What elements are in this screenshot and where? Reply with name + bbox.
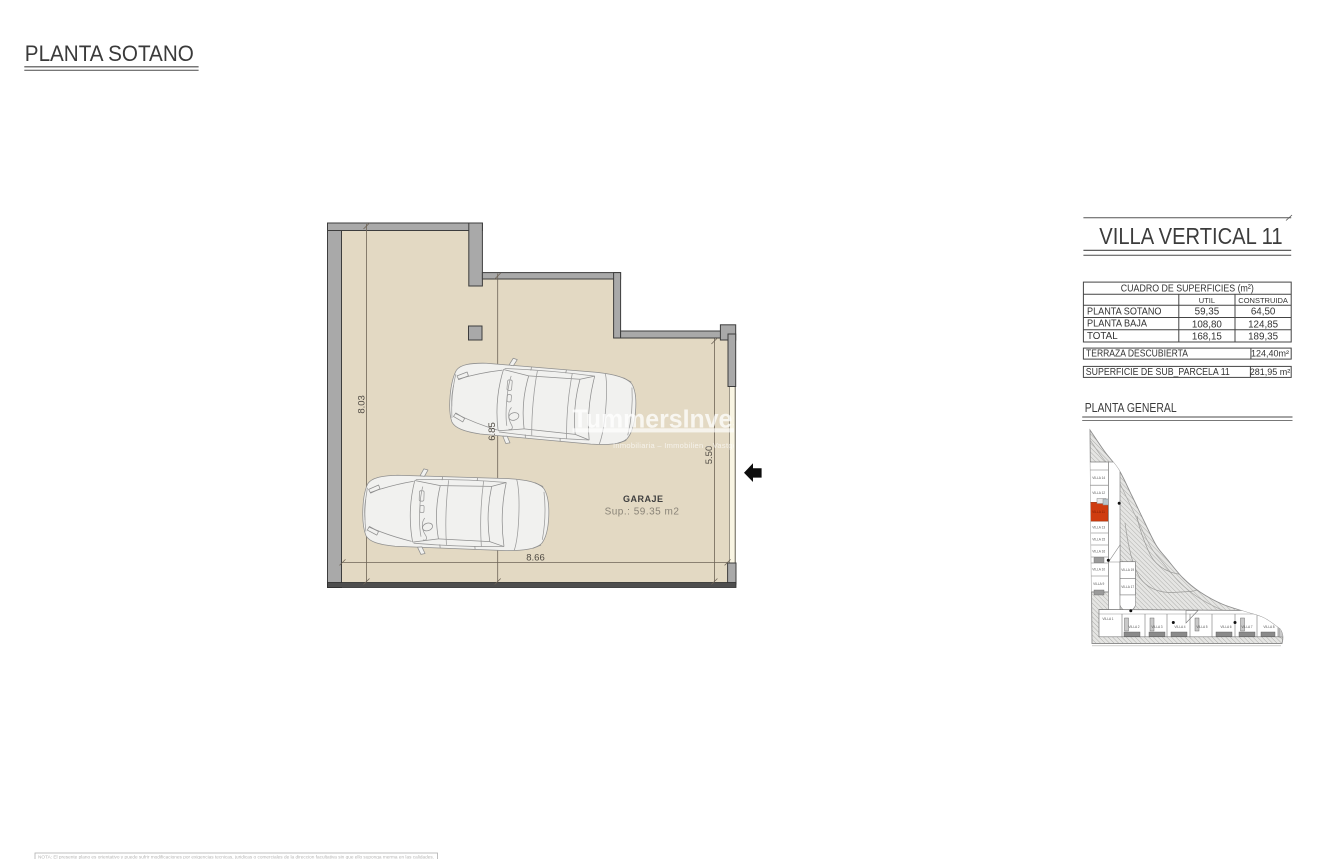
svg-text:PLANTA SOTANO: PLANTA SOTANO [1087,306,1162,317]
svg-text:VILLA 19: VILLA 19 [1121,568,1134,572]
svg-text:PLANTA GENERAL: PLANTA GENERAL [1085,401,1177,415]
svg-text:8.66: 8.66 [526,553,545,564]
svg-text:VILLA 10: VILLA 10 [1092,568,1105,572]
svg-text:59,35: 59,35 [1195,306,1220,317]
svg-text:VILLA 17: VILLA 17 [1121,585,1134,589]
svg-text:VILLA 9: VILLA 9 [1093,582,1104,586]
svg-text:TOTAL: TOTAL [1087,331,1118,342]
svg-text:VILLA 13: VILLA 13 [1092,526,1105,530]
svg-text:GARAJE: GARAJE [623,494,664,504]
svg-text:Sup.: 59.35 m2: Sup.: 59.35 m2 [605,507,680,518]
svg-text:VILLA 14: VILLA 14 [1092,476,1105,480]
svg-text:168,15: 168,15 [1192,332,1223,343]
svg-text:VILLA 1: VILLA 1 [1102,617,1113,621]
svg-text:UTIL: UTIL [1199,296,1215,305]
svg-text:189,35: 189,35 [1248,332,1279,343]
svg-text:6.85: 6.85 [487,422,498,441]
svg-text:PLANTA SOTANO: PLANTA SOTANO [25,41,194,66]
svg-text:VILLA 8: VILLA 8 [1263,625,1274,629]
svg-text:PLANTA BAJA: PLANTA BAJA [1087,318,1147,329]
svg-text:VILLA 5: VILLA 5 [1196,625,1207,629]
svg-text:VILLA 7: VILLA 7 [1241,625,1252,629]
svg-text:VILLA 2: VILLA 2 [1128,625,1139,629]
svg-text:64,50: 64,50 [1251,306,1276,317]
svg-text:TERRAZA DESCUBIERTA: TERRAZA DESCUBIERTA [1086,349,1188,360]
svg-text:108,80: 108,80 [1192,320,1223,331]
svg-text:VILLA 4: VILLA 4 [1174,625,1185,629]
svg-text:Inmobiliaria – Immobilien – Va: Inmobiliaria – Immobilien – Vastgoed [613,441,746,450]
svg-text:124,85: 124,85 [1248,320,1279,331]
svg-text:VILLA 12: VILLA 12 [1092,491,1105,495]
svg-text:CONSTRUIDA: CONSTRUIDA [1238,296,1288,305]
svg-text:NOTA: El presente plano es ori: NOTA: El presente plano es orientativo y… [38,854,434,859]
svg-text:VILLA VERTICAL 11: VILLA VERTICAL 11 [1099,223,1282,249]
svg-text:281,95 m²: 281,95 m² [1250,367,1291,377]
svg-text:VILLA 16: VILLA 16 [1092,550,1105,554]
svg-text:124,40m²: 124,40m² [1251,349,1289,359]
svg-text:8.03: 8.03 [357,395,368,414]
svg-text:VILLA 3: VILLA 3 [1151,625,1162,629]
svg-text:VILLA 15: VILLA 15 [1092,538,1105,542]
svg-text:CUADRO DE SUPERFICIES (m²): CUADRO DE SUPERFICIES (m²) [1121,284,1254,295]
svg-text:VILLA 6: VILLA 6 [1220,625,1231,629]
svg-text:VILLA 11: VILLA 11 [1092,510,1105,514]
svg-text:SUPERFICIE DE SUB_PARCELA 11: SUPERFICIE DE SUB_PARCELA 11 [1086,367,1230,378]
